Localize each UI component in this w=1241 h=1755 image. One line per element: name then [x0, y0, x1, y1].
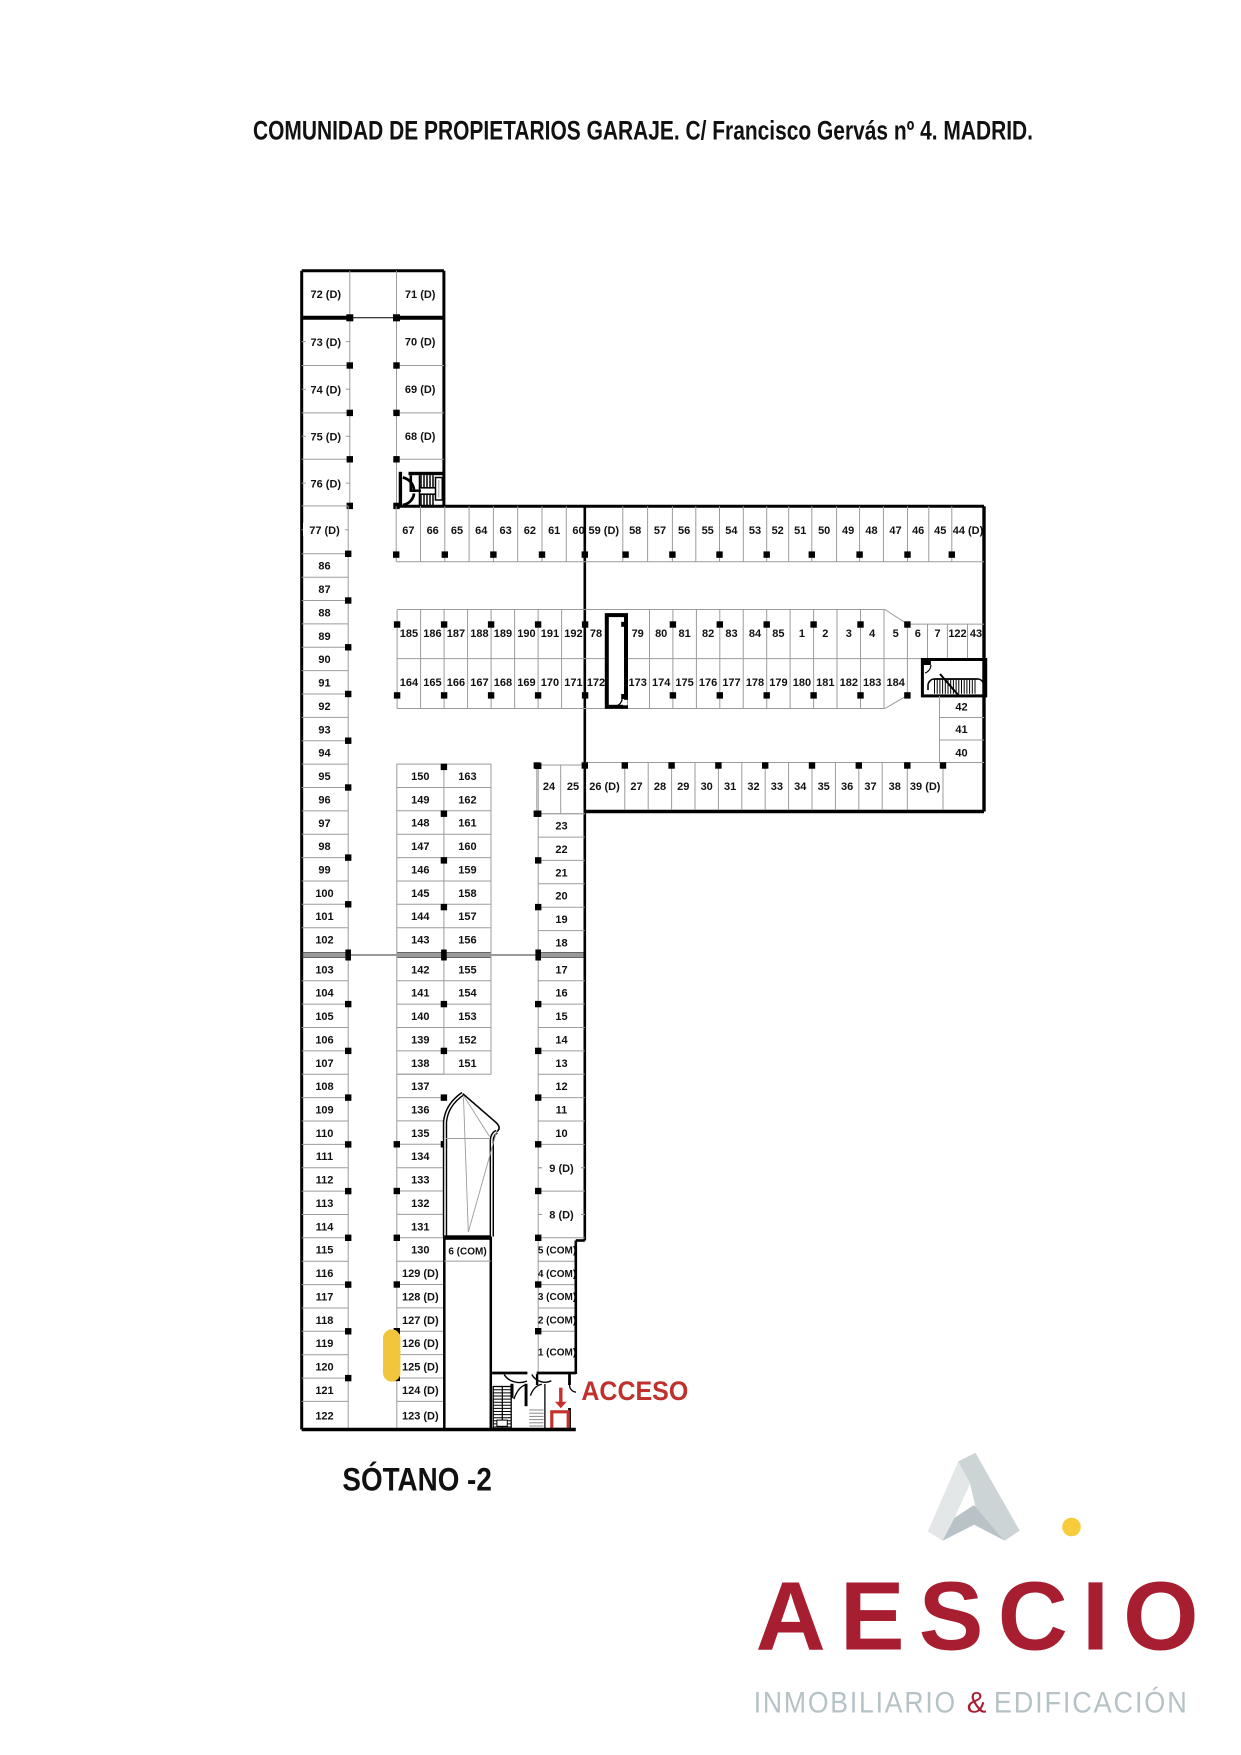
svg-text:147: 147 — [411, 841, 429, 853]
svg-text:70 (D): 70 (D) — [405, 337, 436, 349]
svg-text:171: 171 — [564, 677, 582, 689]
svg-text:61: 61 — [548, 525, 560, 537]
svg-text:25: 25 — [567, 781, 579, 793]
svg-text:79: 79 — [632, 628, 644, 640]
svg-text:174: 174 — [652, 677, 671, 689]
svg-text:10: 10 — [555, 1128, 567, 1140]
svg-text:4 (COM): 4 (COM) — [538, 1269, 576, 1280]
svg-text:116: 116 — [316, 1268, 334, 1280]
svg-text:57: 57 — [654, 525, 666, 537]
svg-text:133: 133 — [411, 1175, 429, 1187]
svg-text:118: 118 — [316, 1315, 334, 1327]
svg-text:65: 65 — [451, 525, 463, 537]
svg-text:96: 96 — [318, 794, 330, 806]
svg-text:130: 130 — [411, 1245, 429, 1257]
svg-text:149: 149 — [411, 794, 429, 806]
svg-text:158: 158 — [458, 888, 476, 900]
svg-text:99: 99 — [318, 865, 330, 877]
svg-text:21: 21 — [555, 867, 567, 879]
svg-text:EDIFICACIÓN: EDIFICACIÓN — [994, 1687, 1189, 1720]
svg-text:131: 131 — [411, 1221, 429, 1233]
svg-text:92: 92 — [318, 701, 330, 713]
svg-text:123 (D): 123 (D) — [402, 1411, 439, 1423]
svg-text:80: 80 — [655, 628, 667, 640]
svg-text:111: 111 — [316, 1151, 333, 1163]
svg-text:77 (D): 77 (D) — [309, 525, 340, 537]
svg-text:50: 50 — [818, 525, 830, 537]
svg-text:33: 33 — [771, 781, 783, 793]
svg-text:136: 136 — [411, 1105, 429, 1117]
svg-text:62: 62 — [524, 525, 536, 537]
svg-text:46: 46 — [912, 525, 924, 537]
svg-text:16: 16 — [555, 988, 567, 1000]
svg-text:142: 142 — [411, 964, 429, 976]
svg-text:36: 36 — [841, 781, 853, 793]
svg-text:138: 138 — [411, 1058, 429, 1070]
svg-text:82: 82 — [702, 628, 714, 640]
svg-text:140: 140 — [411, 1011, 429, 1023]
svg-text:4: 4 — [869, 628, 876, 640]
svg-text:156: 156 — [458, 935, 476, 947]
svg-text:120: 120 — [315, 1362, 333, 1374]
svg-text:181: 181 — [816, 677, 834, 689]
svg-text:38: 38 — [889, 781, 901, 793]
svg-text:98: 98 — [318, 841, 330, 853]
svg-text:95: 95 — [318, 771, 330, 783]
svg-text:159: 159 — [458, 865, 476, 877]
svg-text:105: 105 — [315, 1011, 333, 1023]
svg-text:84: 84 — [749, 628, 762, 640]
svg-text:150: 150 — [411, 771, 429, 783]
svg-text:76 (D): 76 (D) — [311, 478, 342, 490]
svg-text:72 (D): 72 (D) — [311, 289, 342, 301]
svg-text:52: 52 — [772, 525, 784, 537]
svg-text:192: 192 — [564, 628, 582, 640]
svg-text:60: 60 — [572, 525, 584, 537]
svg-text:125 (D): 125 (D) — [402, 1362, 439, 1374]
svg-text:152: 152 — [458, 1034, 476, 1046]
svg-text:160: 160 — [458, 841, 476, 853]
svg-text:151: 151 — [458, 1058, 476, 1070]
svg-text:102: 102 — [315, 935, 333, 947]
svg-text:106: 106 — [315, 1034, 333, 1046]
svg-text:122: 122 — [315, 1411, 333, 1423]
svg-text:56: 56 — [678, 525, 690, 537]
svg-text:139: 139 — [411, 1034, 429, 1046]
svg-text:9 (D): 9 (D) — [549, 1163, 574, 1175]
svg-text:117: 117 — [316, 1292, 334, 1304]
svg-text:45: 45 — [934, 525, 946, 537]
svg-text:175: 175 — [675, 677, 693, 689]
svg-text:75 (D): 75 (D) — [311, 431, 342, 443]
svg-text:34: 34 — [794, 781, 807, 793]
svg-text:3 (COM): 3 (COM) — [538, 1292, 576, 1303]
svg-text:190: 190 — [517, 628, 535, 640]
svg-text:11: 11 — [556, 1105, 568, 1117]
svg-text:135: 135 — [411, 1128, 429, 1140]
svg-text:5 (COM): 5 (COM) — [538, 1246, 576, 1257]
svg-text:AESCIO: AESCIO — [756, 1562, 1212, 1671]
svg-text:51: 51 — [794, 525, 806, 537]
svg-text:48: 48 — [865, 525, 877, 537]
svg-text:71 (D): 71 (D) — [405, 289, 436, 301]
svg-text:89: 89 — [318, 631, 330, 643]
svg-text:185: 185 — [400, 628, 418, 640]
svg-text:157: 157 — [458, 911, 476, 923]
svg-text:145: 145 — [411, 888, 429, 900]
svg-text:107: 107 — [315, 1058, 333, 1070]
svg-text:129 (D): 129 (D) — [402, 1268, 439, 1280]
svg-text:54: 54 — [725, 525, 738, 537]
svg-text:42: 42 — [955, 702, 967, 714]
svg-text:88: 88 — [318, 607, 330, 619]
svg-text:110: 110 — [316, 1128, 334, 1140]
svg-text:SÓTANO -2: SÓTANO -2 — [342, 1462, 491, 1498]
svg-text:12: 12 — [555, 1081, 567, 1093]
svg-text:163: 163 — [458, 771, 476, 783]
svg-text:137: 137 — [411, 1081, 429, 1093]
svg-text:167: 167 — [470, 677, 488, 689]
svg-text:146: 146 — [411, 865, 429, 877]
svg-text:153: 153 — [458, 1011, 476, 1023]
svg-text:43: 43 — [970, 628, 982, 640]
svg-text:154: 154 — [458, 988, 477, 1000]
svg-text:124 (D): 124 (D) — [402, 1385, 439, 1397]
svg-text:127 (D): 127 (D) — [402, 1315, 439, 1327]
svg-text:113: 113 — [316, 1198, 334, 1210]
svg-text:49: 49 — [842, 525, 854, 537]
svg-text:180: 180 — [793, 677, 811, 689]
svg-text:165: 165 — [423, 677, 441, 689]
svg-text:73 (D): 73 (D) — [311, 337, 342, 349]
svg-text:172: 172 — [587, 677, 605, 689]
svg-text:109: 109 — [315, 1105, 333, 1117]
svg-text:184: 184 — [887, 677, 906, 689]
svg-text:183: 183 — [863, 677, 881, 689]
svg-text:176: 176 — [699, 677, 717, 689]
svg-text:164: 164 — [400, 677, 419, 689]
svg-text:108: 108 — [315, 1081, 333, 1093]
svg-text:100: 100 — [315, 888, 333, 900]
svg-text:90: 90 — [318, 654, 330, 666]
svg-text:122: 122 — [948, 628, 966, 640]
svg-text:18: 18 — [555, 937, 567, 949]
svg-text:INMOBILIARIO: INMOBILIARIO — [754, 1687, 957, 1720]
svg-text:27: 27 — [630, 781, 642, 793]
svg-text:128 (D): 128 (D) — [402, 1291, 439, 1303]
svg-text:78: 78 — [590, 628, 602, 640]
svg-text:24: 24 — [543, 781, 556, 793]
svg-text:148: 148 — [411, 818, 429, 830]
svg-text:83: 83 — [725, 628, 737, 640]
svg-text:132: 132 — [411, 1198, 429, 1210]
svg-text:17: 17 — [555, 964, 567, 976]
svg-text:103: 103 — [315, 964, 333, 976]
svg-text:47: 47 — [889, 525, 901, 537]
svg-text:40: 40 — [955, 747, 967, 759]
svg-text:2 (COM): 2 (COM) — [538, 1316, 576, 1327]
svg-text:19: 19 — [555, 914, 567, 926]
svg-text:64: 64 — [475, 525, 488, 537]
svg-text:41: 41 — [955, 724, 967, 736]
svg-text:115: 115 — [316, 1245, 334, 1257]
svg-text:121: 121 — [315, 1385, 333, 1397]
svg-text:23: 23 — [555, 821, 567, 833]
svg-text:169: 169 — [517, 677, 535, 689]
svg-text:1: 1 — [799, 628, 805, 640]
svg-text:166: 166 — [447, 677, 465, 689]
svg-text:59 (D): 59 (D) — [589, 525, 620, 537]
svg-text:29: 29 — [677, 781, 689, 793]
svg-text:155: 155 — [458, 964, 476, 976]
svg-text:6 (COM): 6 (COM) — [448, 1247, 486, 1258]
svg-text:104: 104 — [315, 988, 334, 1000]
svg-text:161: 161 — [458, 818, 476, 830]
svg-text:39 (D): 39 (D) — [910, 781, 941, 793]
svg-text:126 (D): 126 (D) — [402, 1338, 439, 1350]
svg-text:COMUNIDAD DE PROPIETARIOS GARA: COMUNIDAD DE PROPIETARIOS GARAJE. C/ Fra… — [253, 115, 1033, 145]
svg-text:141: 141 — [411, 988, 429, 1000]
svg-text:101: 101 — [315, 911, 333, 923]
svg-text:93: 93 — [318, 724, 330, 736]
svg-text:177: 177 — [722, 677, 740, 689]
svg-text:32: 32 — [747, 781, 759, 793]
svg-text:1 (COM): 1 (COM) — [538, 1348, 576, 1359]
svg-text:63: 63 — [499, 525, 511, 537]
svg-text:69 (D): 69 (D) — [405, 384, 436, 396]
svg-text:162: 162 — [458, 794, 476, 806]
svg-text:81: 81 — [678, 628, 690, 640]
svg-text:86: 86 — [318, 561, 330, 573]
svg-text:112: 112 — [316, 1175, 334, 1187]
svg-text:85: 85 — [772, 628, 784, 640]
svg-text:2: 2 — [822, 628, 828, 640]
svg-text:188: 188 — [470, 628, 488, 640]
svg-text:55: 55 — [702, 525, 714, 537]
svg-text:5: 5 — [893, 628, 899, 640]
svg-text:178: 178 — [746, 677, 764, 689]
svg-text:173: 173 — [629, 677, 647, 689]
svg-text:58: 58 — [629, 525, 641, 537]
svg-text:13: 13 — [555, 1058, 567, 1070]
svg-text:26 (D): 26 (D) — [589, 781, 620, 793]
svg-text:189: 189 — [494, 628, 512, 640]
svg-text:&: & — [967, 1687, 987, 1720]
svg-text:143: 143 — [411, 935, 429, 947]
svg-text:53: 53 — [749, 525, 761, 537]
svg-text:179: 179 — [769, 677, 787, 689]
svg-text:8 (D): 8 (D) — [549, 1210, 574, 1222]
svg-text:187: 187 — [447, 628, 465, 640]
svg-text:31: 31 — [724, 781, 736, 793]
svg-text:186: 186 — [423, 628, 441, 640]
svg-text:191: 191 — [541, 628, 559, 640]
svg-text:35: 35 — [818, 781, 830, 793]
svg-text:20: 20 — [555, 891, 567, 903]
svg-text:14: 14 — [555, 1034, 568, 1046]
svg-text:67: 67 — [402, 525, 414, 537]
svg-text:6: 6 — [915, 628, 921, 640]
svg-text:87: 87 — [318, 584, 330, 596]
svg-text:28: 28 — [654, 781, 666, 793]
svg-text:3: 3 — [846, 628, 852, 640]
svg-text:168: 168 — [494, 677, 512, 689]
svg-text:66: 66 — [427, 525, 439, 537]
svg-text:37: 37 — [864, 781, 876, 793]
svg-text:119: 119 — [316, 1338, 334, 1350]
svg-text:91: 91 — [318, 678, 330, 690]
svg-text:144: 144 — [411, 911, 430, 923]
svg-text:30: 30 — [701, 781, 713, 793]
svg-text:ACCESO: ACCESO — [581, 1376, 688, 1406]
svg-text:22: 22 — [555, 844, 567, 856]
svg-text:44 (D): 44 (D) — [953, 525, 984, 537]
svg-text:97: 97 — [318, 818, 330, 830]
svg-text:94: 94 — [318, 748, 331, 760]
svg-text:134: 134 — [411, 1151, 430, 1163]
svg-text:68 (D): 68 (D) — [405, 431, 436, 443]
svg-text:182: 182 — [840, 677, 858, 689]
svg-text:74 (D): 74 (D) — [311, 384, 342, 396]
svg-text:114: 114 — [316, 1221, 335, 1233]
svg-text:15: 15 — [555, 1011, 567, 1023]
svg-text:7: 7 — [934, 628, 940, 640]
svg-text:170: 170 — [541, 677, 559, 689]
